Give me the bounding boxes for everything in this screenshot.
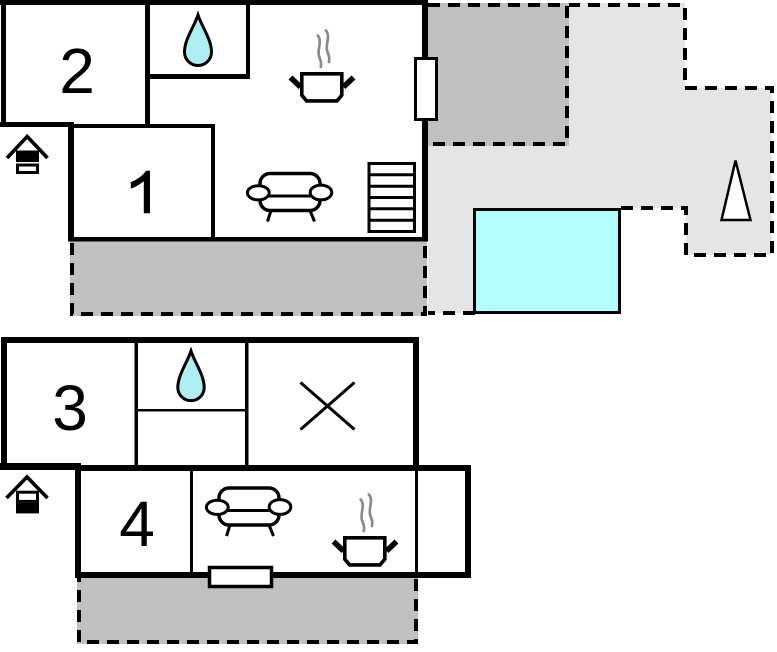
svg-text:3: 3: [52, 372, 88, 444]
svg-text:2: 2: [59, 35, 95, 107]
svg-text:4: 4: [119, 488, 155, 560]
